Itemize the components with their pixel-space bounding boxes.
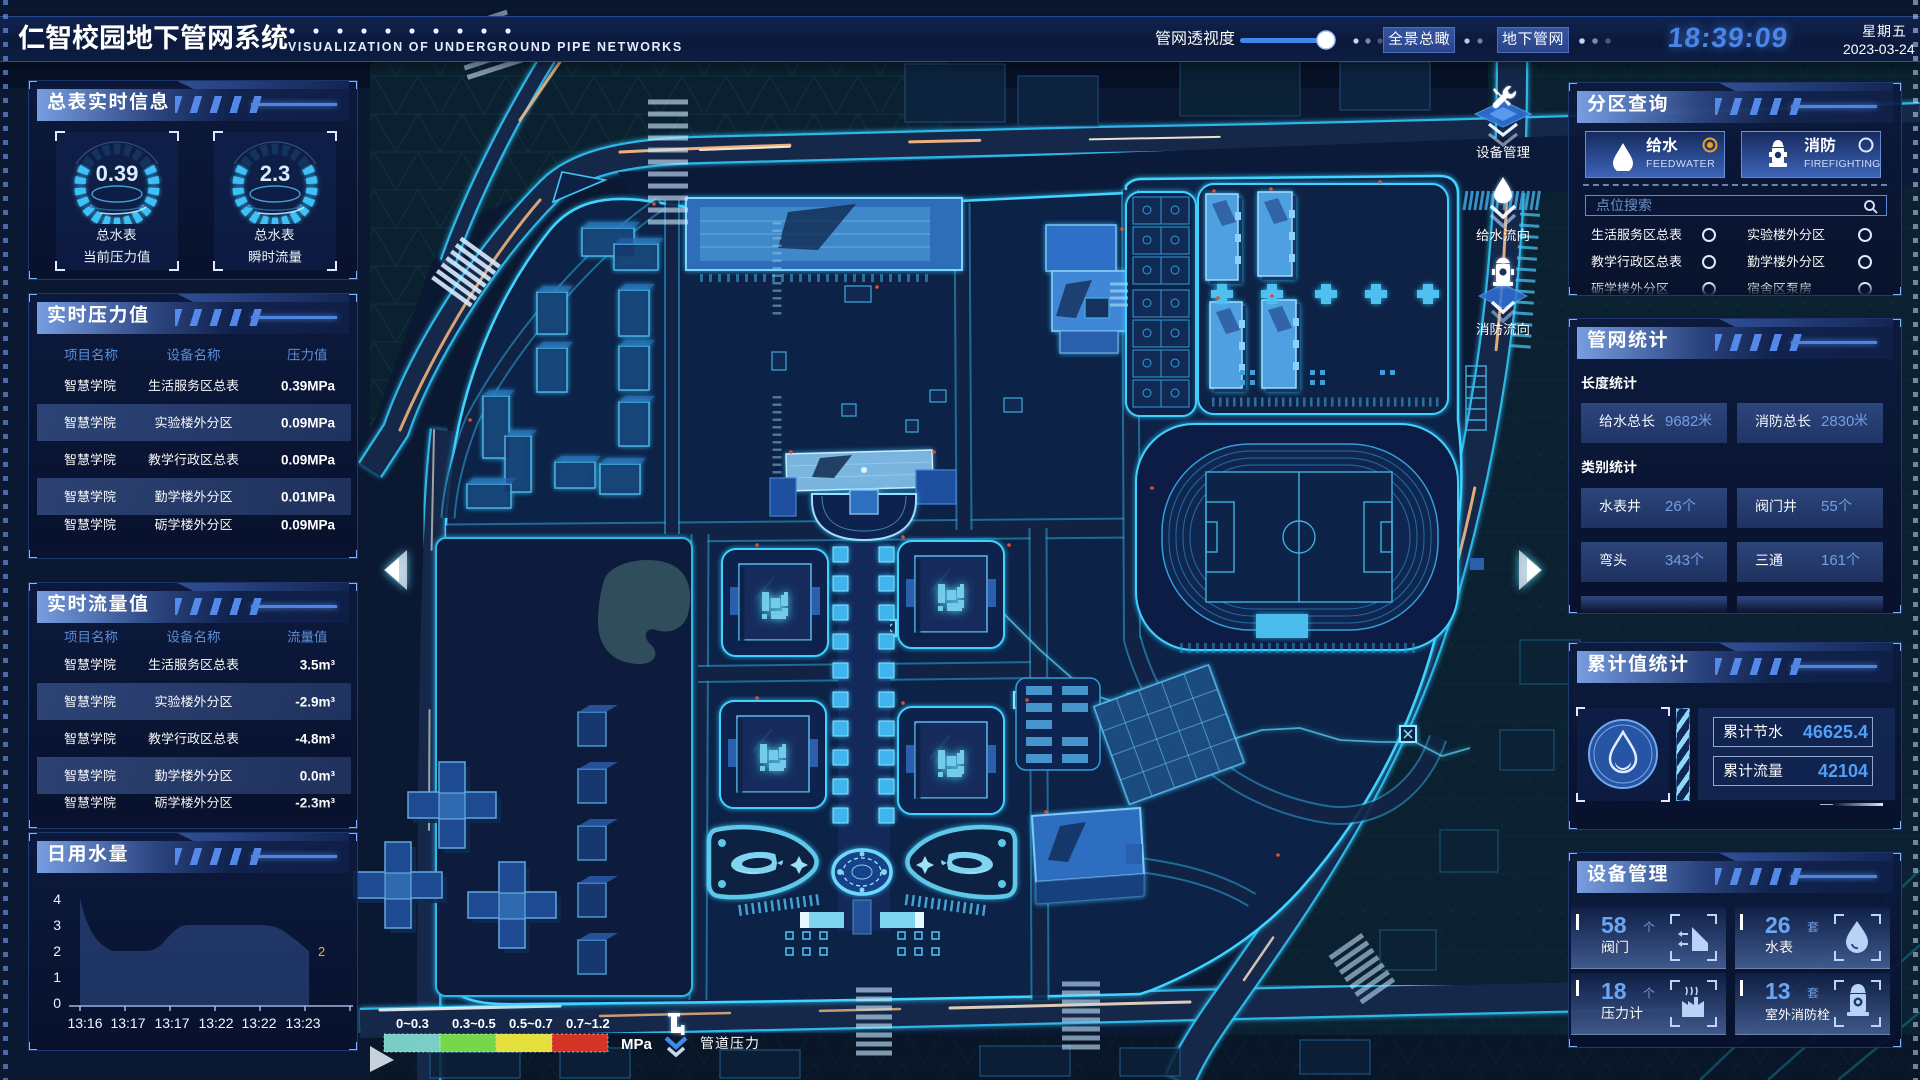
svg-text:13:17: 13:17 xyxy=(110,1015,145,1031)
svg-text:2: 2 xyxy=(53,943,61,959)
svg-text:2.3: 2.3 xyxy=(260,161,291,186)
svg-text:13:22: 13:22 xyxy=(198,1015,233,1031)
svg-text:3: 3 xyxy=(53,917,61,933)
svg-text:0~0.3: 0~0.3 xyxy=(396,1016,429,1031)
svg-text:4: 4 xyxy=(53,891,61,907)
svg-text:0: 0 xyxy=(53,995,61,1011)
svg-text:MPa: MPa xyxy=(621,1036,653,1053)
svg-text:0.5~0.7: 0.5~0.7 xyxy=(509,1016,553,1031)
svg-text:0.3~0.5: 0.3~0.5 xyxy=(452,1016,496,1031)
svg-text:0.39: 0.39 xyxy=(96,161,139,186)
svg-text:13:23: 13:23 xyxy=(285,1015,320,1031)
svg-text:13:22: 13:22 xyxy=(241,1015,276,1031)
svg-text:2: 2 xyxy=(318,944,325,959)
svg-text:1: 1 xyxy=(53,969,61,985)
svg-text:13:16: 13:16 xyxy=(67,1015,102,1031)
svg-text:0.7~1.2: 0.7~1.2 xyxy=(566,1016,610,1031)
svg-text:13:17: 13:17 xyxy=(154,1015,189,1031)
